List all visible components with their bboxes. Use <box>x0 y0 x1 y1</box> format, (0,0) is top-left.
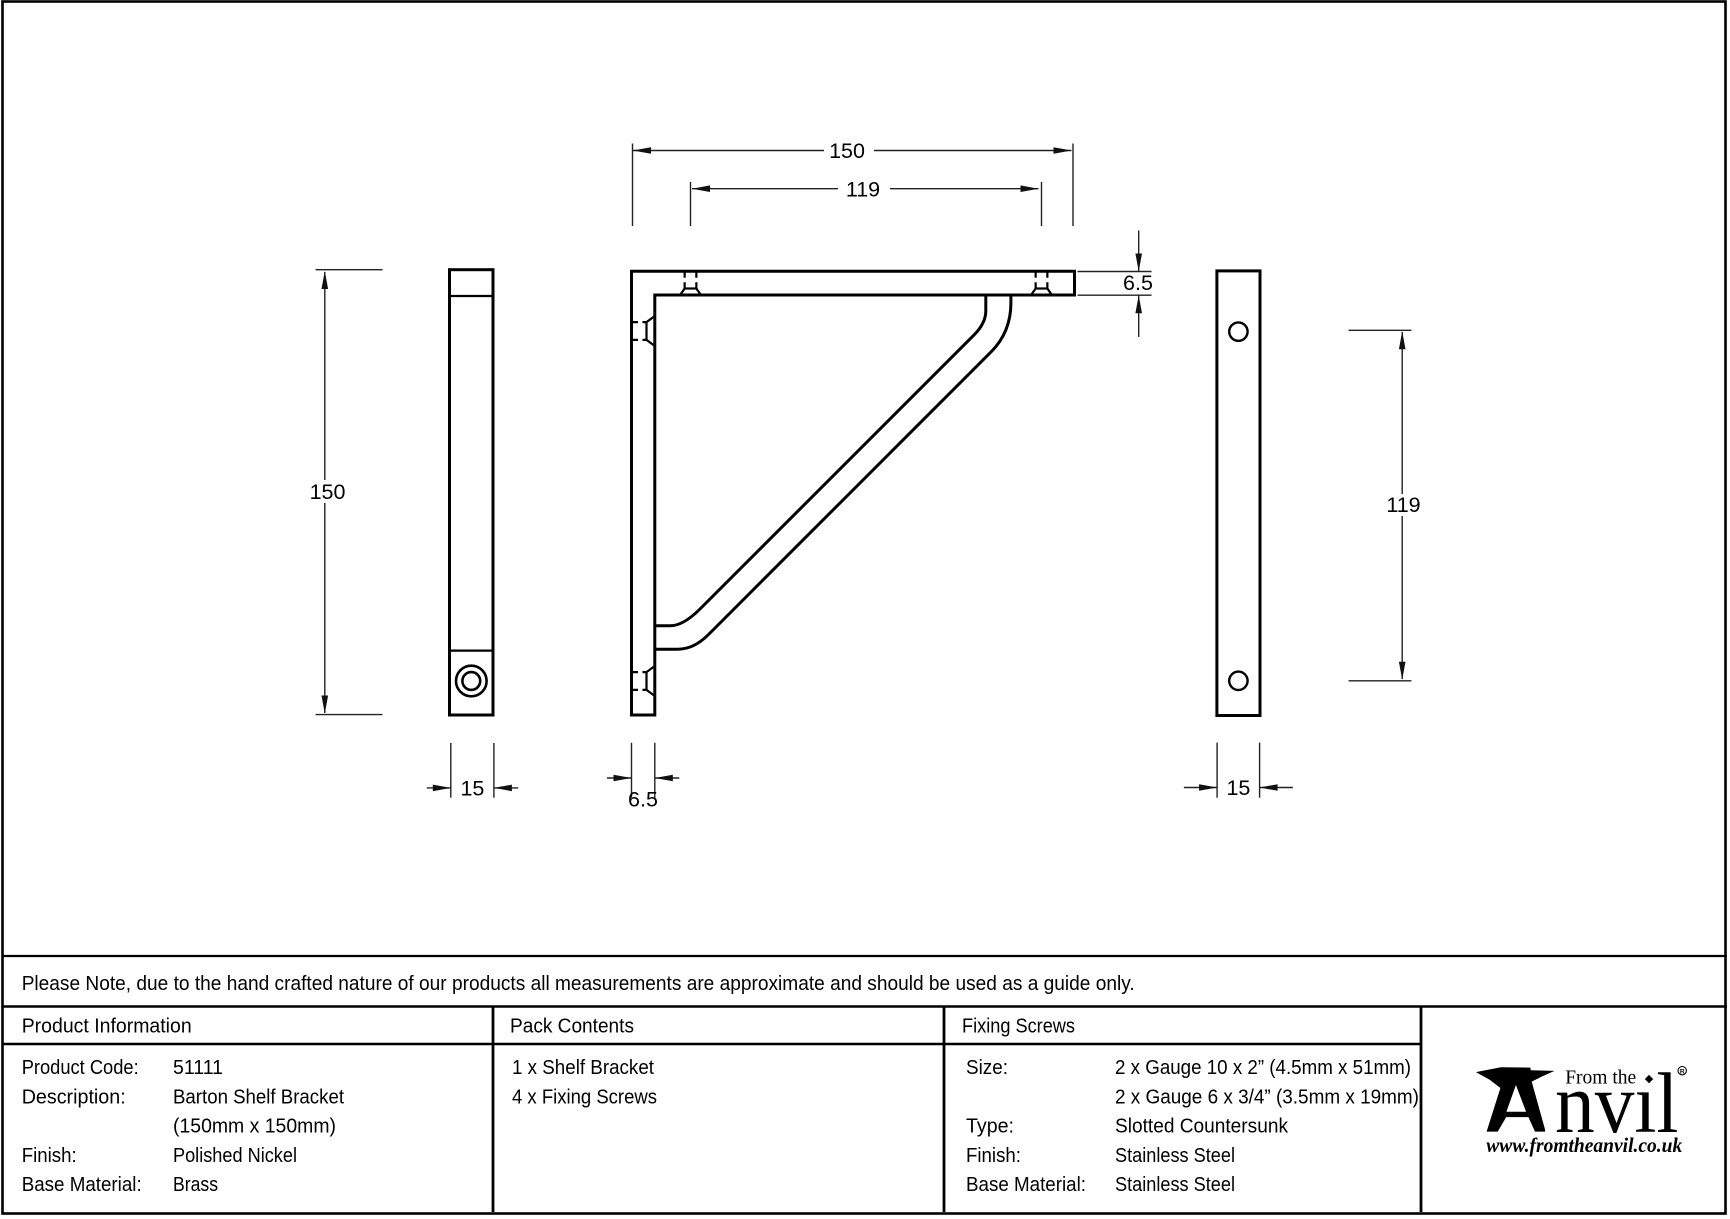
svg-text:6.5: 6.5 <box>628 788 658 812</box>
svg-text:6.5: 6.5 <box>1123 271 1153 295</box>
svg-text:150: 150 <box>829 139 865 163</box>
svg-text:Base Material:: Base Material: <box>966 1173 1086 1196</box>
svg-text:Polished Nickel: Polished Nickel <box>173 1144 297 1167</box>
svg-text:150: 150 <box>310 480 346 504</box>
svg-text:Product Code:: Product Code: <box>22 1056 139 1079</box>
svg-text:R: R <box>1680 1069 1685 1076</box>
svg-text:Brass: Brass <box>173 1173 218 1196</box>
svg-text:15: 15 <box>1226 776 1250 800</box>
svg-text:4 x Fixing Screws: 4 x Fixing Screws <box>512 1085 657 1108</box>
svg-text:Product Information: Product Information <box>22 1015 192 1038</box>
svg-text:Please Note, due to the hand c: Please Note, due to the hand crafted nat… <box>22 972 1135 995</box>
svg-text:www.fromtheanvil.co.uk: www.fromtheanvil.co.uk <box>1486 1133 1682 1157</box>
svg-text:Barton Shelf Bracket: Barton Shelf Bracket <box>173 1085 344 1108</box>
svg-text:(150mm x 150mm): (150mm x 150mm) <box>173 1115 336 1138</box>
svg-text:Pack Contents: Pack Contents <box>510 1015 634 1038</box>
svg-text:119: 119 <box>846 177 880 201</box>
svg-text:51111: 51111 <box>173 1056 223 1079</box>
svg-text:Size:: Size: <box>966 1056 1008 1079</box>
svg-text:119: 119 <box>1386 493 1420 517</box>
svg-text:Finish:: Finish: <box>22 1144 77 1167</box>
svg-text:Type:: Type: <box>966 1115 1014 1138</box>
svg-text:Fixing Screws: Fixing Screws <box>962 1015 1075 1038</box>
svg-text:Base Material:: Base Material: <box>22 1173 142 1196</box>
svg-text:Stainless Steel: Stainless Steel <box>1115 1173 1235 1196</box>
svg-text:1 x Shelf Bracket: 1 x Shelf Bracket <box>512 1056 654 1079</box>
svg-text:Description:: Description: <box>22 1085 126 1108</box>
svg-text:Finish:: Finish: <box>966 1144 1021 1167</box>
svg-text:2 x Gauge 6 x 3/4” (3.5mm x 19: 2 x Gauge 6 x 3/4” (3.5mm x 19mm) <box>1115 1085 1419 1108</box>
svg-text:Stainless Steel: Stainless Steel <box>1115 1144 1235 1167</box>
svg-text:15: 15 <box>460 777 484 801</box>
svg-text:Slotted Countersunk: Slotted Countersunk <box>1115 1115 1289 1138</box>
svg-text:2 x Gauge 10 x 2” (4.5mm x 51m: 2 x Gauge 10 x 2” (4.5mm x 51mm) <box>1115 1056 1411 1079</box>
